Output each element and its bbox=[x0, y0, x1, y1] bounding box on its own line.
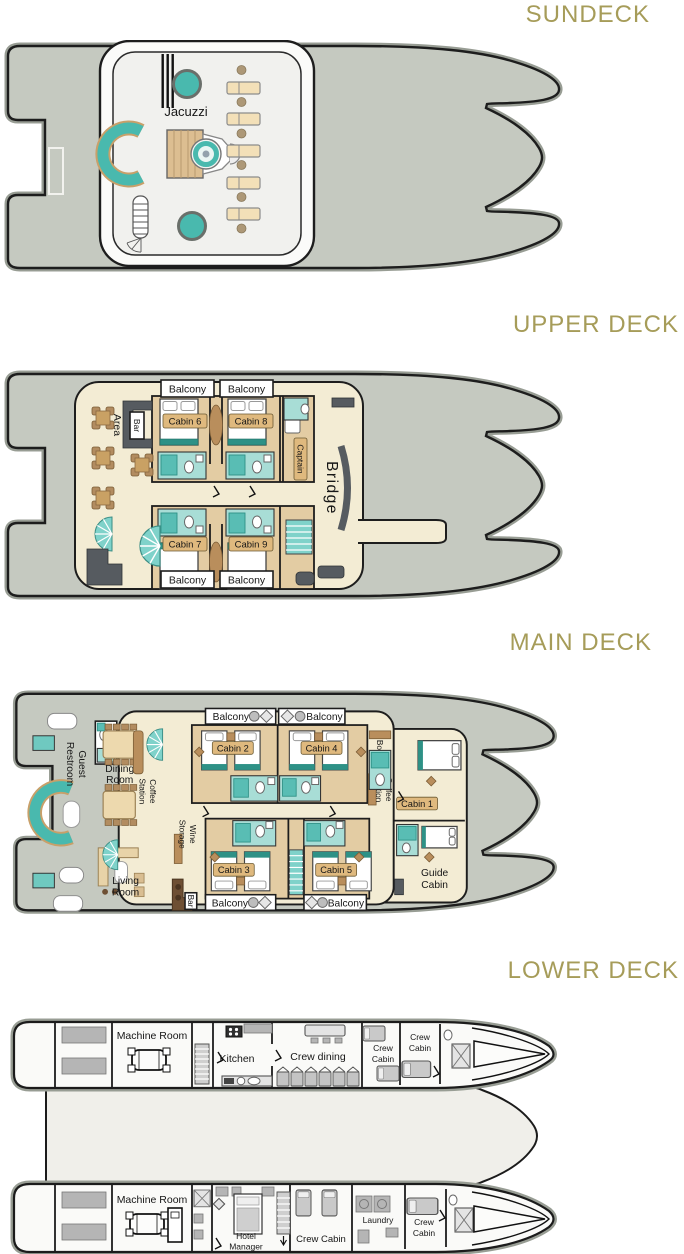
coffee-label-line1: Coffee bbox=[148, 779, 157, 804]
crew-dining-label: Crew dining bbox=[290, 1051, 346, 1063]
crew-cabin-label-line2: Cabin bbox=[372, 1054, 394, 1064]
cabin-3-label: Cabin 3 bbox=[218, 865, 250, 875]
jacuzzi-label: Jacuzzi bbox=[164, 104, 207, 119]
crew-cabin-label-line1: Crew bbox=[373, 1043, 394, 1053]
dining-label-line2: Room bbox=[106, 775, 133, 786]
stairs-straight bbox=[289, 850, 303, 895]
bar-label: Bar bbox=[132, 419, 142, 432]
bridge-deck-between-hulls bbox=[46, 1087, 537, 1185]
guide-label-line2: Cabin bbox=[421, 880, 448, 891]
bar-label: Bar bbox=[186, 895, 195, 908]
deck-title-lower: LOWER DECK bbox=[508, 957, 679, 985]
sundeck-plan: Jacuzzi bbox=[0, 40, 684, 274]
kitchen-label: Kitchen bbox=[219, 1053, 254, 1065]
bench-lines bbox=[162, 54, 174, 108]
aft-table bbox=[63, 801, 80, 827]
deck-title-sundeck: SUNDECK bbox=[526, 1, 650, 29]
laundry-label: Laundry bbox=[363, 1215, 394, 1225]
guest-restroom-label-line1: Guest bbox=[76, 750, 87, 777]
cabin-5-label: Cabin 5 bbox=[320, 865, 352, 875]
cabin-9-label: Cabin 9 bbox=[235, 540, 268, 551]
balcony-label: Balcony bbox=[228, 575, 266, 587]
main-deck-plan: Guest Restroom Cabin 2 Cabin 4 bbox=[0, 688, 684, 922]
balcony-label: Balcony bbox=[213, 712, 250, 723]
guide-label-line1: Guide bbox=[421, 868, 449, 879]
coffee-label-line2: Station bbox=[138, 778, 147, 804]
balcony-label: Balcony bbox=[212, 898, 249, 909]
balcony-boxes-top: Balcony Balcony bbox=[206, 708, 345, 724]
cabin-7-label: Cabin 7 bbox=[169, 540, 202, 551]
sun-loungers bbox=[227, 66, 260, 234]
hotel-manager-label-line1: Hotel bbox=[236, 1231, 256, 1241]
wine-label-line2: Storage bbox=[178, 820, 187, 849]
cabin-8-label: Cabin 8 bbox=[235, 417, 268, 428]
crew-cabin-label-line2: Cabin bbox=[413, 1228, 435, 1238]
deck-plan-diagram: SUNDECK UPPER DECK MAIN DECK LOWER DECK … bbox=[0, 0, 684, 1254]
balcony-label: Balcony bbox=[169, 575, 207, 587]
balcony-label: Balcony bbox=[306, 712, 343, 723]
lower-deck-plan: Machine Room Kitchen Crew dining bbox=[0, 1014, 684, 1254]
sundeck-superstructure: Jacuzzi bbox=[100, 41, 314, 266]
cabin-4-label: Cabin 4 bbox=[306, 743, 338, 753]
balcony-label: Balcony bbox=[228, 384, 266, 396]
cabin-6-label: Cabin 6 bbox=[169, 417, 202, 428]
starboard-hull: Machine Room Hotel Manager bbox=[14, 1184, 554, 1252]
dining-room: Dining Room bbox=[103, 724, 137, 825]
balcony-label: Balcony bbox=[328, 898, 365, 909]
wine-label-line1: Wine bbox=[188, 825, 197, 844]
stairs-ladder bbox=[195, 1044, 209, 1084]
hotel-manager-label-line2: Manager bbox=[229, 1242, 263, 1252]
cabin-1-label: Cabin 1 bbox=[401, 799, 433, 809]
machine-room-starboard: Machine Room bbox=[117, 1194, 188, 1242]
port-hull: Machine Room Kitchen Crew dining bbox=[14, 1022, 554, 1088]
deck-title-main: MAIN DECK bbox=[510, 629, 652, 657]
living-label-line1: Living bbox=[112, 876, 139, 887]
upper-deck-plan: Cabin 6 Cabin 8 Cabin 7 Cabin 9 bbox=[0, 368, 684, 602]
walkway bbox=[358, 520, 446, 543]
guest-restroom-label-line2: Restroom bbox=[64, 742, 75, 786]
round-table bbox=[179, 213, 206, 240]
crew-cabin-label: Crew Cabin bbox=[296, 1234, 346, 1245]
corridor-table bbox=[210, 405, 223, 445]
living-label-line2: Room bbox=[112, 888, 139, 899]
machine-room-label: Machine Room bbox=[117, 1030, 188, 1042]
captain-label: Captain bbox=[296, 444, 306, 474]
machine-room-label: Machine Room bbox=[117, 1194, 188, 1206]
dining-label-line1: Dining bbox=[105, 764, 134, 775]
stairs-straight bbox=[286, 520, 312, 554]
crew-cabin-label-line1: Crew bbox=[410, 1032, 431, 1042]
crew-cabin-label-line2: Cabin bbox=[409, 1043, 431, 1053]
bridge-label: Bridge bbox=[323, 461, 340, 515]
balcony-label: Balcony bbox=[169, 384, 207, 396]
deck-title-upper: UPPER DECK bbox=[513, 311, 679, 339]
cabin-2-label: Cabin 2 bbox=[217, 743, 249, 753]
round-table bbox=[174, 71, 201, 98]
crew-cabin-label-line1: Crew bbox=[414, 1217, 435, 1227]
